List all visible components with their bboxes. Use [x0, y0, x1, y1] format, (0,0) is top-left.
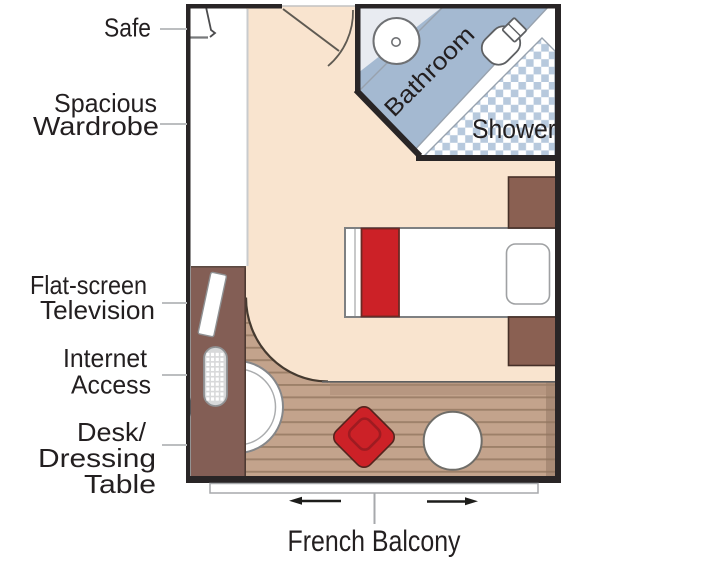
svg-text:Internet: Internet — [63, 343, 148, 373]
svg-text:Access: Access — [71, 370, 151, 400]
svg-text:Safe: Safe — [104, 13, 151, 43]
svg-text:Shower: Shower — [472, 114, 556, 144]
svg-text:French Balcony: French Balcony — [288, 525, 461, 558]
svg-text:Television: Television — [40, 295, 155, 325]
svg-text:Wardrobe: Wardrobe — [33, 111, 159, 141]
svg-text:Table: Table — [84, 469, 156, 499]
